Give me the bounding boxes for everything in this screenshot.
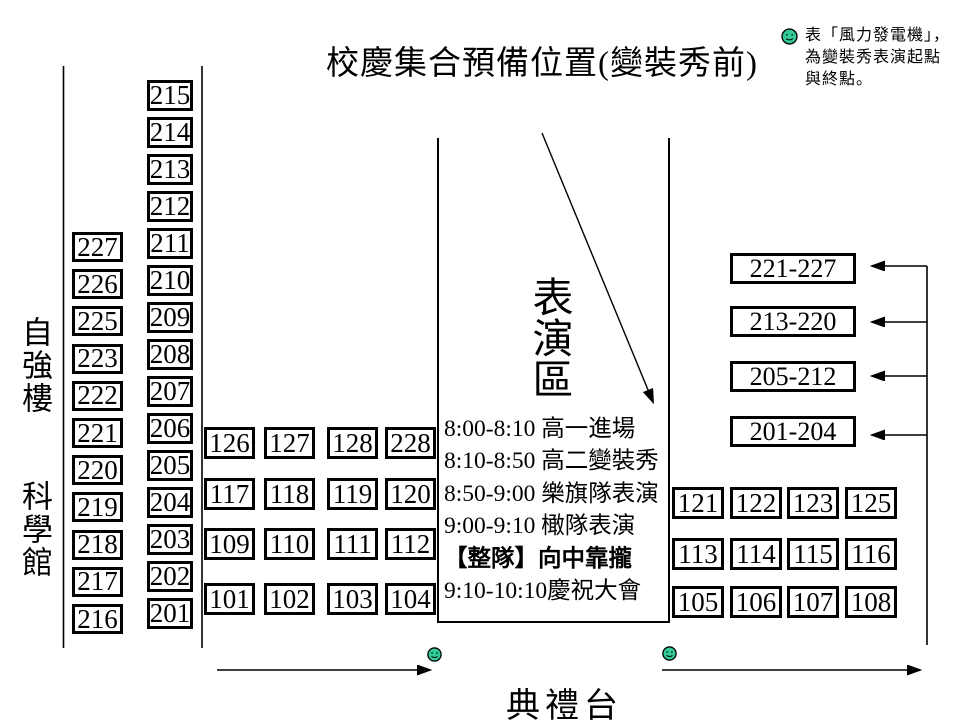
slide-canvas: 校慶集合預備位置(變裝秀前) 表「風力發電機」， 為變裝秀表演起點 與終點。 自…	[0, 0, 960, 720]
schedule-line: 【整隊】向中靠攏	[444, 543, 672, 575]
performance-area-label: 表演區	[528, 276, 569, 399]
group-range-box: 221-227	[730, 253, 856, 284]
performance-area-outline: 表演區 8:00-8:10 高一進場8:10-8:50 高二變裝秀8:50-9:…	[437, 138, 670, 623]
group-range-box: 201-204	[730, 416, 856, 447]
schedule-line: 9:00-9:10 橄隊表演	[444, 510, 672, 542]
schedule-line: 8:10-8:50 高二變裝秀	[444, 445, 672, 477]
schedule-line: 9:10-10:10慶祝大會	[444, 575, 672, 607]
schedule-line: 8:00-8:10 高一進場	[444, 413, 672, 445]
ceremony-stage-label: 典禮台	[506, 678, 623, 720]
group-range-box: 213-220	[730, 306, 856, 337]
wind-turbine-start-icon	[427, 647, 442, 662]
group-range-box: 205-212	[730, 361, 856, 392]
schedule-line: 8:50-9:00 樂旗隊表演	[444, 478, 672, 510]
schedule-list: 8:00-8:10 高一進場8:10-8:50 高二變裝秀8:50-9:00 樂…	[444, 413, 672, 607]
wind-turbine-end-icon	[662, 646, 677, 661]
